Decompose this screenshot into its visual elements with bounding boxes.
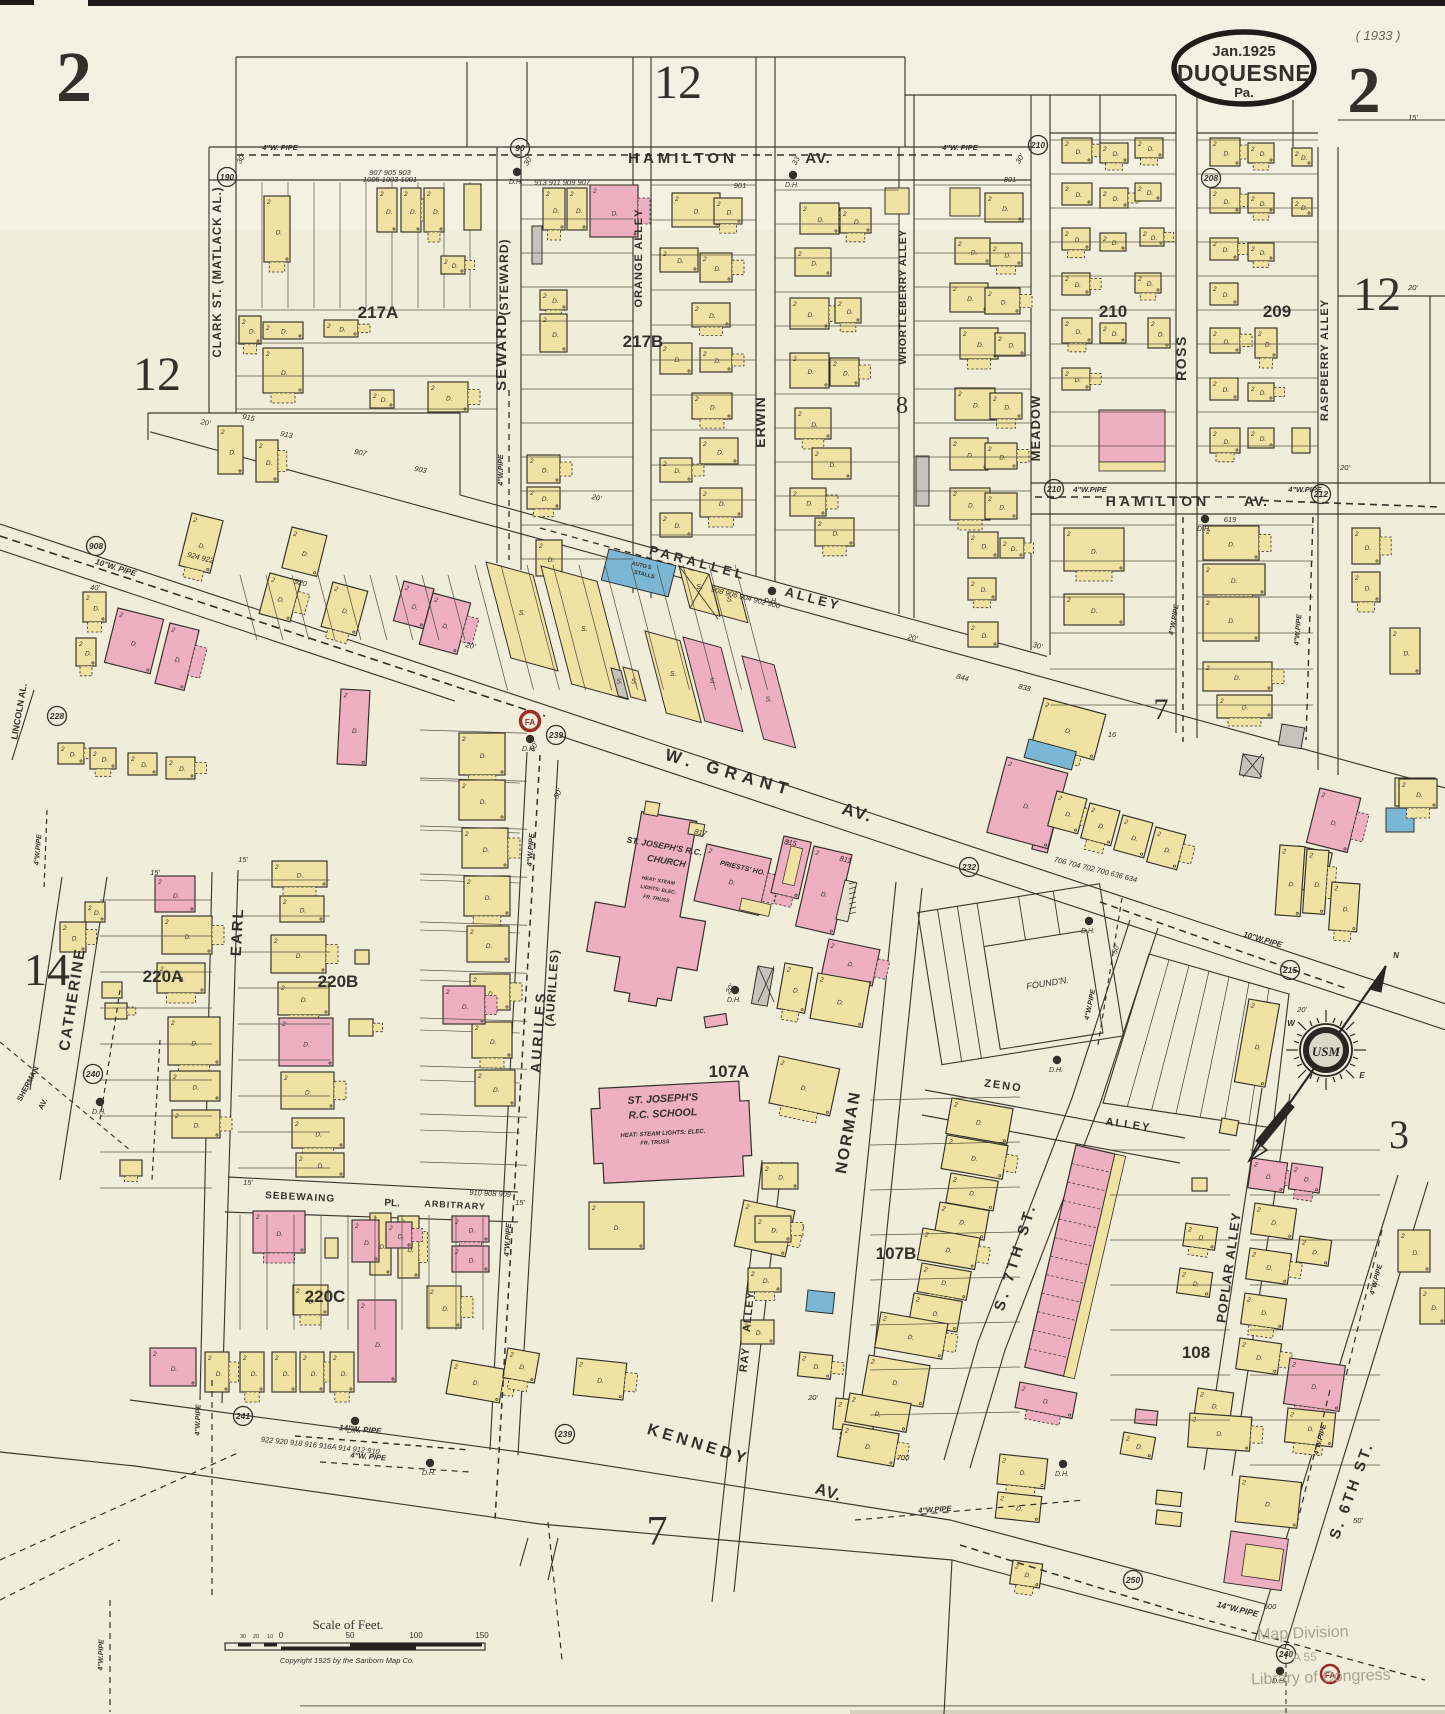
svg-text:D.H.: D.H. xyxy=(785,182,799,189)
svg-text:D.: D. xyxy=(85,650,92,657)
svg-text:2: 2 xyxy=(429,1289,434,1296)
svg-text:2: 2 xyxy=(1257,331,1262,338)
svg-text:2: 2 xyxy=(992,396,997,403)
svg-text:D.: D. xyxy=(1223,387,1230,394)
svg-text:0: 0 xyxy=(279,1631,284,1640)
svg-text:D.: D. xyxy=(808,369,815,376)
svg-text:D.: D. xyxy=(967,296,974,303)
svg-text:D.: D. xyxy=(771,1227,778,1234)
svg-text:2: 2 xyxy=(1205,665,1210,672)
svg-text:D.: D. xyxy=(1004,404,1011,411)
svg-text:D.: D. xyxy=(813,1364,820,1372)
svg-text:2: 2 xyxy=(987,446,992,453)
svg-text:4"W.PIPE: 4"W.PIPE xyxy=(1072,485,1107,494)
svg-text:D.: D. xyxy=(830,462,837,469)
svg-text:16: 16 xyxy=(1108,730,1117,739)
svg-text:2: 2 xyxy=(283,1075,288,1082)
svg-text:2: 2 xyxy=(970,581,975,588)
svg-text:2: 2 xyxy=(1294,201,1299,208)
svg-text:15': 15' xyxy=(243,1178,253,1187)
svg-text:D.: D. xyxy=(318,1163,325,1170)
svg-text:241: 241 xyxy=(235,1411,250,1421)
svg-text:D.: D. xyxy=(1242,705,1249,712)
svg-text:2: 2 xyxy=(403,191,408,198)
svg-text:D.: D. xyxy=(276,229,283,236)
svg-text:240: 240 xyxy=(85,1069,100,1079)
svg-text:2: 2 xyxy=(1064,186,1069,193)
svg-text:2: 2 xyxy=(992,246,997,253)
svg-text:D.: D. xyxy=(1148,146,1155,153)
svg-text:2: 2 xyxy=(545,191,550,198)
svg-text:D.: D. xyxy=(854,219,861,226)
svg-text:2: 2 xyxy=(1212,191,1217,198)
svg-text:2: 2 xyxy=(1205,600,1210,607)
svg-text:20': 20' xyxy=(807,1393,818,1402)
svg-text:D.: D. xyxy=(674,357,681,364)
svg-text:2: 2 xyxy=(797,251,802,258)
svg-text:2: 2 xyxy=(164,919,169,926)
svg-text:2: 2 xyxy=(702,351,707,358)
svg-text:D.: D. xyxy=(1076,329,1083,336)
svg-text:4"W.PIPE: 4"W.PIPE xyxy=(194,1404,202,1437)
svg-text:Map Division: Map Division xyxy=(1257,1623,1349,1643)
svg-text:D.: D. xyxy=(1075,282,1082,289)
svg-text:SEWARD: SEWARD xyxy=(493,313,510,391)
svg-text:D.: D. xyxy=(1113,151,1120,158)
svg-text:D.H.: D.H. xyxy=(1081,928,1095,935)
svg-text:2: 2 xyxy=(694,396,699,403)
svg-text:D.: D. xyxy=(301,997,308,1004)
svg-text:217B: 217B xyxy=(623,332,664,351)
svg-text:2: 2 xyxy=(716,201,721,208)
svg-text:2: 2 xyxy=(445,989,450,996)
svg-text:D.: D. xyxy=(410,209,417,216)
svg-text:D.: D. xyxy=(981,587,988,594)
svg-text:2: 2 xyxy=(1137,276,1142,283)
svg-text:D.: D. xyxy=(1416,792,1423,799)
svg-text:D.: D. xyxy=(1303,1176,1311,1184)
svg-text:2: 2 xyxy=(474,1025,479,1032)
svg-text:2: 2 xyxy=(360,1303,365,1310)
svg-text:12: 12 xyxy=(1353,268,1401,321)
svg-text:D.: D. xyxy=(1265,342,1272,349)
svg-text:D.: D. xyxy=(493,1087,500,1094)
svg-text:D.H.: D.H. xyxy=(1055,1471,1069,1478)
svg-text:D.: D. xyxy=(614,1225,621,1232)
svg-text:2: 2 xyxy=(1137,141,1142,148)
svg-text:90: 90 xyxy=(515,143,525,153)
svg-text:Jan.1925: Jan.1925 xyxy=(1212,43,1275,60)
svg-text:2: 2 xyxy=(1064,231,1069,238)
svg-text:D.: D. xyxy=(364,1240,371,1247)
svg-text:215: 215 xyxy=(1282,965,1297,975)
svg-text:150: 150 xyxy=(475,1631,489,1640)
svg-text:S.: S. xyxy=(616,678,623,685)
svg-text:D.: D. xyxy=(833,530,840,537)
svg-text:ROSS: ROSS xyxy=(1173,335,1189,381)
svg-text:WHORTLEBERRY ALLEY: WHORTLEBERRY ALLEY xyxy=(897,229,909,364)
svg-text:D.: D. xyxy=(300,907,307,914)
svg-text:2: 2 xyxy=(168,760,173,767)
svg-text:D.: D. xyxy=(694,209,701,216)
svg-text:D.: D. xyxy=(433,209,440,216)
svg-text:220C: 220C xyxy=(305,1287,346,1306)
svg-text:50: 50 xyxy=(346,1631,355,1640)
svg-text:D.: D. xyxy=(1076,149,1083,156)
svg-text:2: 2 xyxy=(372,393,377,400)
svg-text:2: 2 xyxy=(987,196,992,203)
svg-text:USM: USM xyxy=(1312,1044,1341,1059)
svg-text:D.: D. xyxy=(1016,1505,1023,1513)
svg-text:2: 2 xyxy=(464,831,469,838)
svg-text:2: 2 xyxy=(274,864,279,871)
svg-text:D.: D. xyxy=(1091,549,1098,556)
svg-text:D.: D. xyxy=(296,953,303,960)
svg-text:2: 2 xyxy=(56,37,92,117)
svg-text:D.: D. xyxy=(973,403,980,410)
svg-text:D.: D. xyxy=(982,543,989,550)
svg-text:D.: D. xyxy=(1158,332,1165,339)
svg-text:D.: D. xyxy=(1112,331,1119,338)
svg-text:D.: D. xyxy=(677,258,684,265)
svg-text:D.: D. xyxy=(171,1366,178,1373)
svg-text:2: 2 xyxy=(702,491,707,498)
svg-text:Scale of Feet.: Scale of Feet. xyxy=(312,1617,383,1632)
svg-text:908: 908 xyxy=(89,541,103,551)
svg-text:D.: D. xyxy=(486,943,493,950)
svg-text:2: 2 xyxy=(952,491,957,498)
svg-text:D.: D. xyxy=(352,728,359,735)
svg-text:2: 2 xyxy=(957,241,962,248)
svg-text:15': 15' xyxy=(150,868,160,877)
svg-text:D.: D. xyxy=(305,1089,312,1096)
svg-text:D.: D. xyxy=(719,501,726,508)
svg-text:2: 2 xyxy=(1219,698,1224,705)
svg-text:D.: D. xyxy=(1271,1219,1279,1227)
svg-text:D.: D. xyxy=(1231,578,1238,585)
svg-text:2: 2 xyxy=(1064,276,1069,283)
svg-text:2: 2 xyxy=(62,925,67,932)
svg-text:2: 2 xyxy=(326,323,331,330)
svg-text:D.: D. xyxy=(597,1378,604,1386)
svg-text:2: 2 xyxy=(702,441,707,448)
svg-text:D.: D. xyxy=(1365,586,1372,593)
svg-text:D.H.: D.H. xyxy=(422,1470,436,1477)
svg-text:239: 239 xyxy=(557,1429,572,1439)
svg-text:107A: 107A xyxy=(709,1062,750,1081)
svg-text:2: 2 xyxy=(241,319,246,326)
svg-text:D.: D. xyxy=(714,358,721,365)
svg-text:2: 2 xyxy=(591,1205,596,1212)
svg-text:D.: D. xyxy=(1260,436,1267,443)
svg-text:D.: D. xyxy=(1011,546,1018,553)
svg-text:D.: D. xyxy=(173,893,180,900)
svg-text:210: 210 xyxy=(1046,484,1061,494)
svg-text:2: 2 xyxy=(542,317,547,324)
svg-text:D.: D. xyxy=(70,752,77,759)
svg-text:2: 2 xyxy=(242,1355,247,1362)
svg-text:2: 2 xyxy=(1250,196,1255,203)
svg-text:2: 2 xyxy=(529,458,534,465)
svg-text:D.: D. xyxy=(1265,1174,1273,1182)
svg-text:D.: D. xyxy=(1404,650,1411,657)
svg-text:D.: D. xyxy=(818,217,825,224)
svg-text:Copyright 1925 by the Sanborn: Copyright 1925 by the Sanborn Map Co. xyxy=(280,1656,414,1665)
svg-text:D.: D. xyxy=(1301,155,1308,162)
svg-text:D.: D. xyxy=(398,1233,405,1240)
svg-text:D.: D. xyxy=(709,313,716,320)
svg-text:2: 2 xyxy=(1212,286,1217,293)
svg-text:239: 239 xyxy=(548,730,563,740)
svg-text:4"W.PIPE: 4"W.PIPE xyxy=(97,1639,105,1672)
svg-text:D.: D. xyxy=(469,1257,476,1264)
svg-text:2: 2 xyxy=(280,985,285,992)
svg-text:D.: D. xyxy=(179,766,186,773)
svg-text:D.: D. xyxy=(469,1227,476,1234)
svg-text:2: 2 xyxy=(694,306,699,313)
svg-text:2: 2 xyxy=(792,356,797,363)
svg-text:217A: 217A xyxy=(358,303,399,322)
svg-text:2: 2 xyxy=(792,301,797,308)
svg-text:2: 2 xyxy=(1102,326,1107,333)
svg-text:2: 2 xyxy=(1281,848,1286,855)
svg-text:208: 208 xyxy=(1203,173,1218,183)
svg-text:2: 2 xyxy=(298,1156,303,1163)
svg-text:D.: D. xyxy=(452,263,459,270)
svg-text:2: 2 xyxy=(157,879,162,886)
svg-text:D.: D. xyxy=(446,396,453,403)
svg-text:2: 2 xyxy=(1250,431,1255,438)
svg-text:8: 8 xyxy=(896,393,908,419)
svg-text:HAMILTON: HAMILTON xyxy=(1106,493,1211,509)
svg-text:2: 2 xyxy=(426,191,431,198)
svg-text:N: N xyxy=(1393,951,1399,960)
svg-text:AV.: AV. xyxy=(1244,493,1268,509)
svg-text:2: 2 xyxy=(1150,321,1155,328)
svg-text:D.: D. xyxy=(1198,1235,1206,1243)
svg-text:D.: D. xyxy=(1223,292,1230,299)
svg-text:D.: D. xyxy=(612,211,619,218)
svg-text:DUQUESNE: DUQUESNE xyxy=(1177,60,1311,86)
svg-text:20': 20' xyxy=(1339,463,1350,472)
svg-text:S.: S. xyxy=(670,671,677,678)
svg-text:2: 2 xyxy=(814,451,819,458)
svg-text:2: 2 xyxy=(1102,146,1107,153)
svg-text:2: 2 xyxy=(542,293,547,300)
svg-text:2: 2 xyxy=(802,206,807,213)
svg-text:15': 15' xyxy=(238,855,248,864)
svg-text:D.: D. xyxy=(1147,190,1154,197)
svg-text:20: 20 xyxy=(253,1634,259,1640)
svg-text:107B: 107B xyxy=(876,1244,917,1263)
svg-text:D.: D. xyxy=(1431,1305,1438,1312)
svg-text:2: 2 xyxy=(952,441,957,448)
svg-text:600: 600 xyxy=(1264,1602,1277,1611)
svg-text:D.: D. xyxy=(1266,1264,1274,1272)
svg-text:2: 2 xyxy=(332,1355,337,1362)
svg-text:209: 209 xyxy=(1263,302,1291,321)
svg-text:D.: D. xyxy=(1260,151,1267,158)
svg-text:2: 2 xyxy=(454,1249,459,1256)
svg-text:S.: S. xyxy=(519,610,526,617)
svg-text:D.: D. xyxy=(276,1231,283,1238)
svg-text:( 1933 ): ( 1933 ) xyxy=(1356,28,1401,43)
svg-text:2: 2 xyxy=(281,1021,286,1028)
svg-text:220A: 220A xyxy=(143,967,184,986)
svg-text:4"W. PIPE: 4"W. PIPE xyxy=(941,143,979,152)
svg-text:2: 2 xyxy=(1354,531,1359,538)
svg-text:2: 2 xyxy=(750,1271,755,1278)
svg-text:D.: D. xyxy=(1228,542,1235,549)
svg-text:D.: D. xyxy=(483,847,490,854)
svg-text:D.: D. xyxy=(442,1306,449,1313)
svg-text:2: 2 xyxy=(569,191,574,198)
svg-text:D.: D. xyxy=(216,1371,223,1378)
svg-text:D.: D. xyxy=(1075,237,1082,244)
svg-text:2: 2 xyxy=(152,1351,157,1358)
svg-text:D.H.: D.H. xyxy=(1049,1067,1063,1074)
svg-text:108: 108 xyxy=(1182,1343,1210,1362)
svg-text:D.: D. xyxy=(341,1371,348,1378)
svg-text:D.: D. xyxy=(674,523,681,530)
svg-text:12: 12 xyxy=(133,348,181,401)
svg-text:4"W. PIPE: 4"W. PIPE xyxy=(261,143,299,152)
svg-text:MEADOW: MEADOW xyxy=(1028,395,1043,462)
svg-text:D.H.: D.H. xyxy=(92,1109,106,1116)
svg-text:619: 619 xyxy=(1224,515,1237,524)
svg-text:D.: D. xyxy=(1224,199,1231,206)
svg-text:D.: D. xyxy=(1224,439,1231,446)
svg-text:801: 801 xyxy=(1004,175,1017,184)
svg-text:2: 2 xyxy=(379,191,384,198)
svg-text:2: 2 xyxy=(702,256,707,263)
svg-text:D.: D. xyxy=(102,757,109,764)
svg-text:D.: D. xyxy=(999,454,1006,461)
svg-text:D.: D. xyxy=(710,404,717,411)
svg-text:2: 2 xyxy=(1354,575,1359,582)
svg-text:913 911 909 907: 913 911 909 907 xyxy=(534,178,591,187)
svg-text:EARL: EARL xyxy=(228,907,248,957)
svg-text:210: 210 xyxy=(1099,302,1127,321)
svg-text:2: 2 xyxy=(255,1214,260,1221)
svg-text:D.: D. xyxy=(1260,390,1267,397)
svg-text:D.: D. xyxy=(94,910,101,917)
svg-text:D.: D. xyxy=(1224,150,1231,157)
svg-text:D.: D. xyxy=(339,326,346,333)
svg-text:2: 2 xyxy=(130,756,135,763)
svg-text:2: 2 xyxy=(472,977,477,984)
svg-text:D.: D. xyxy=(1228,618,1235,625)
svg-text:2: 2 xyxy=(274,1355,279,1362)
svg-text:2: 2 xyxy=(1348,54,1381,127)
svg-text:2: 2 xyxy=(342,692,347,699)
svg-text:D.: D. xyxy=(193,1085,200,1092)
svg-text:D.: D. xyxy=(982,633,989,640)
svg-text:2: 2 xyxy=(220,429,225,436)
svg-text:D.: D. xyxy=(185,934,192,941)
svg-text:15': 15' xyxy=(515,1198,525,1207)
svg-text:D.: D. xyxy=(977,342,984,349)
svg-text:2: 2 xyxy=(85,595,90,602)
svg-text:ORANGE ALLEY: ORANGE ALLEY xyxy=(633,209,645,308)
svg-text:D.: D. xyxy=(847,309,854,316)
svg-text:2: 2 xyxy=(1064,321,1069,328)
svg-text:2: 2 xyxy=(294,1121,299,1128)
svg-text:D.: D. xyxy=(674,468,681,475)
svg-text:700: 700 xyxy=(897,1453,910,1462)
svg-text:D.: D. xyxy=(542,467,549,474)
svg-text:D.: D. xyxy=(714,266,721,273)
svg-text:2: 2 xyxy=(1308,852,1313,859)
svg-text:2: 2 xyxy=(170,1020,175,1027)
svg-text:40': 40' xyxy=(90,583,100,592)
svg-text:220B: 220B xyxy=(318,972,359,991)
svg-text:2: 2 xyxy=(1250,386,1255,393)
svg-text:2: 2 xyxy=(430,385,435,392)
svg-text:2: 2 xyxy=(1137,186,1142,193)
svg-text:2: 2 xyxy=(1064,371,1069,378)
svg-text:2: 2 xyxy=(970,625,975,632)
svg-text:D.: D. xyxy=(281,328,288,335)
svg-text:S.: S. xyxy=(581,626,588,633)
svg-text:D.: D. xyxy=(1113,196,1120,203)
svg-text:D.: D. xyxy=(1091,608,1098,615)
svg-text:A 55: A 55 xyxy=(1293,1650,1318,1665)
svg-text:D.: D. xyxy=(303,1041,310,1048)
svg-text:D.: D. xyxy=(386,209,393,216)
svg-text:D.: D. xyxy=(311,1371,318,1378)
svg-text:2: 2 xyxy=(388,1225,393,1232)
svg-text:2: 2 xyxy=(1400,1233,1405,1240)
svg-text:D.: D. xyxy=(375,1342,382,1349)
svg-text:2: 2 xyxy=(1212,431,1217,438)
svg-text:D.: D. xyxy=(806,500,813,507)
svg-text:D.: D. xyxy=(552,298,559,305)
svg-text:2: 2 xyxy=(1064,141,1069,148)
svg-text:2: 2 xyxy=(997,336,1002,343)
svg-text:15': 15' xyxy=(1408,113,1418,122)
svg-text:7: 7 xyxy=(1154,693,1169,726)
svg-text:D.: D. xyxy=(381,397,388,404)
svg-text:2: 2 xyxy=(477,1073,482,1080)
svg-text:2: 2 xyxy=(443,259,448,266)
svg-text:240: 240 xyxy=(1278,1649,1293,1659)
svg-text:2: 2 xyxy=(797,411,802,418)
svg-text:D.: D. xyxy=(1224,339,1231,346)
svg-text:2: 2 xyxy=(662,461,667,468)
svg-text:D.: D. xyxy=(1256,1354,1264,1362)
svg-text:D.: D. xyxy=(763,1278,770,1285)
svg-text:D.: D. xyxy=(1112,240,1119,247)
svg-text:D.: D. xyxy=(811,260,818,267)
svg-text:2: 2 xyxy=(1333,885,1338,892)
svg-text:D.: D. xyxy=(1311,1384,1319,1392)
svg-text:2: 2 xyxy=(987,496,992,503)
svg-text:2: 2 xyxy=(1102,191,1107,198)
svg-text:D.: D. xyxy=(1147,281,1154,288)
svg-text:D.: D. xyxy=(1009,343,1016,350)
svg-text:CLARK ST. (MATLACK AL.): CLARK ST. (MATLACK AL.) xyxy=(212,186,224,357)
svg-text:20': 20' xyxy=(1407,283,1418,292)
svg-text:232: 232 xyxy=(961,862,976,872)
svg-text:2: 2 xyxy=(957,391,962,398)
svg-text:2: 2 xyxy=(92,751,97,758)
svg-text:D.: D. xyxy=(490,1039,497,1046)
svg-text:2: 2 xyxy=(265,325,270,332)
svg-text:2: 2 xyxy=(466,879,471,886)
svg-text:2: 2 xyxy=(1066,531,1071,538)
svg-text:2: 2 xyxy=(1422,1291,1427,1298)
